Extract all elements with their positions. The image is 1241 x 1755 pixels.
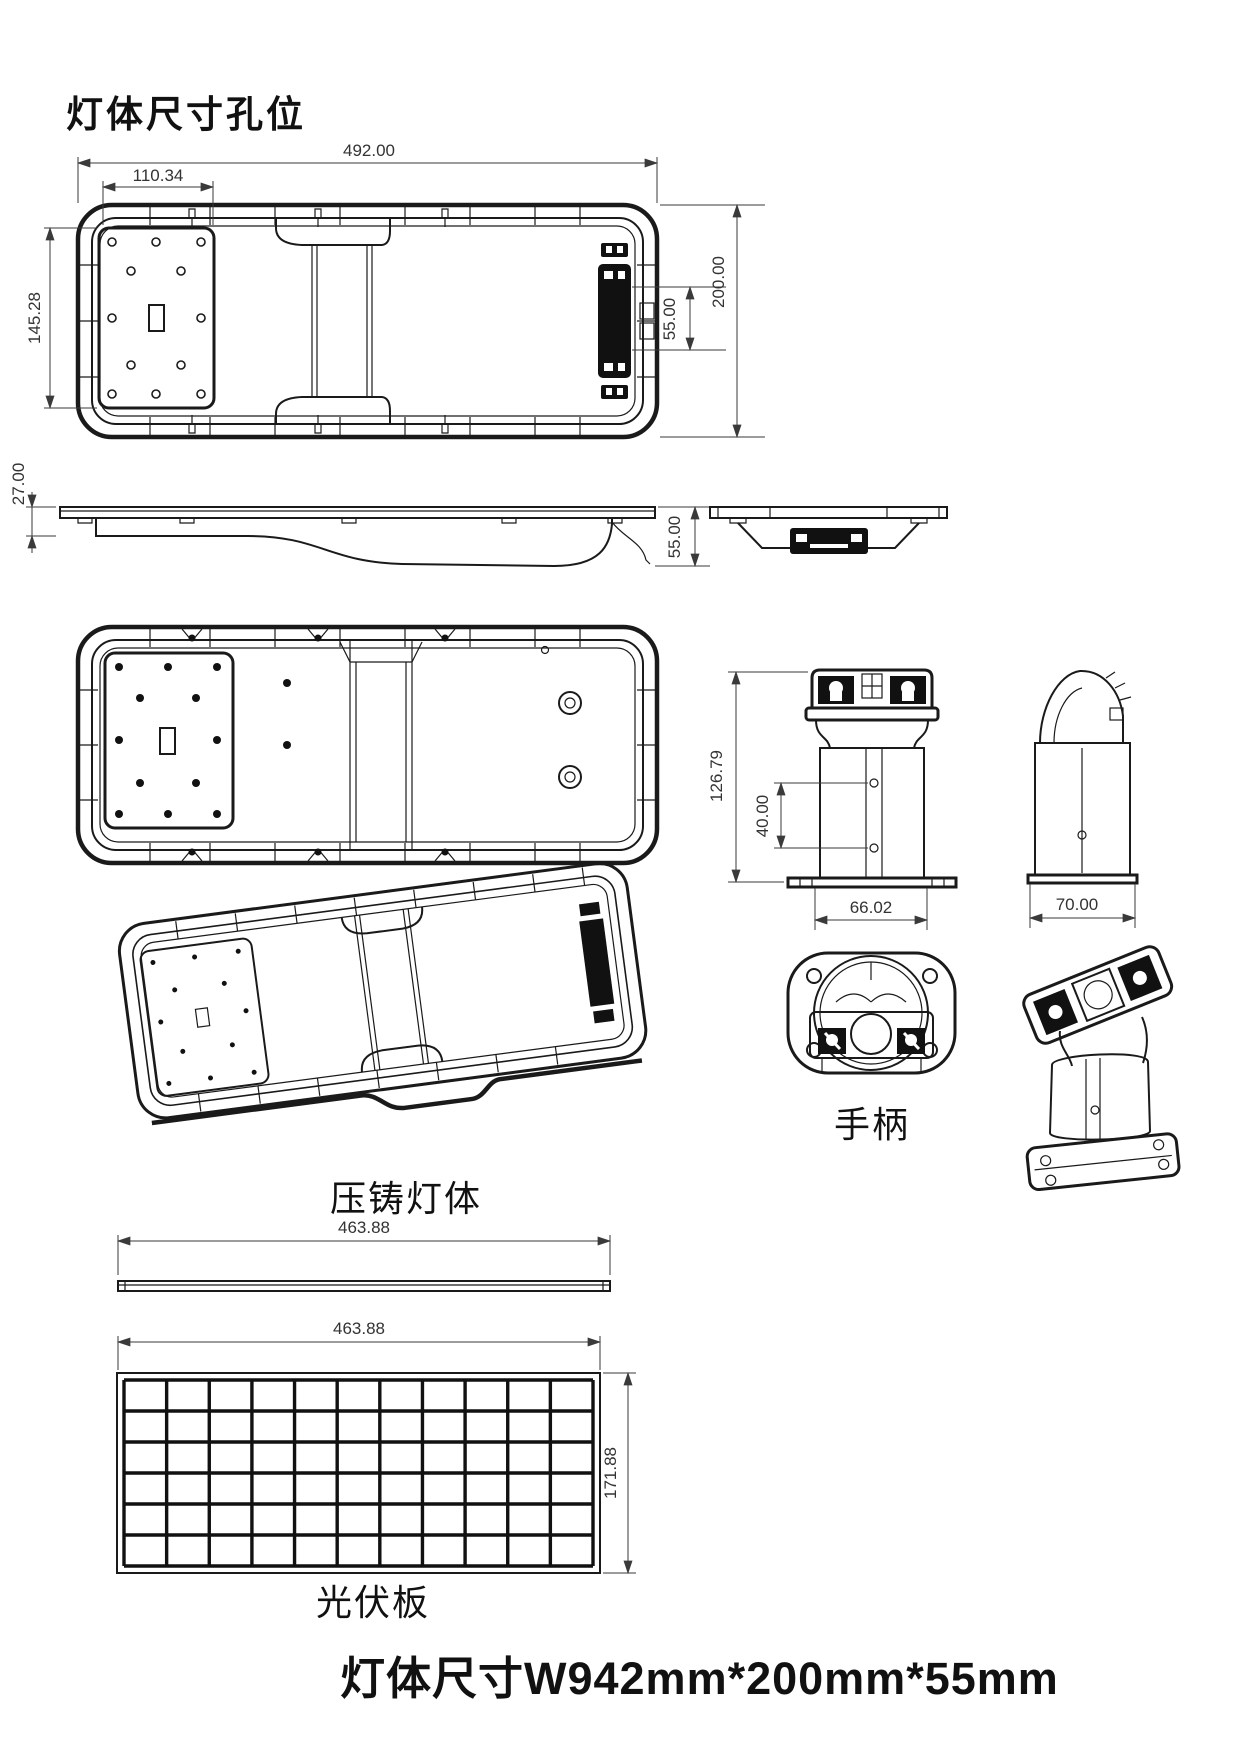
bracket-side-drawing: 70.00 [1010,630,1190,960]
handle-label: 手柄 [834,1096,910,1148]
solar-cell-grid [124,1380,593,1566]
mounting-holes [108,238,205,398]
dim-base-width: 66.02 [850,898,893,917]
dim-side-base-width: 70.00 [1056,895,1099,914]
dim-overall-height: 200.00 [709,256,728,308]
handle-iso-base [1026,1133,1180,1190]
solar-bar-drawing: 463.88 [80,1215,660,1305]
plate-screws [115,663,221,818]
bracket-horn [1040,671,1123,743]
overall-size-note: 灯体尺寸W942mm*200mm*55mm [340,1642,1059,1707]
solar-panel-drawing: 463.88 171.88 [80,1318,680,1598]
dim-panel-height: 171.88 [601,1447,620,1499]
dim-hole-spacing: 40.00 [753,795,772,838]
top-view-drawing: 492.00 110.34 145.28 55.00 200.00 [20,125,800,465]
dim-plate-height: 145.28 [25,292,44,344]
dim-rim-thickness: 27.00 [10,463,28,506]
panel-edge-profile [118,1281,610,1291]
dim-panel-width: 463.88 [333,1319,385,1338]
side-top-rim [60,507,655,518]
handle-iso-cap [1021,944,1175,1047]
solar-panel-label: 光伏板 [316,1574,430,1626]
iso-connector [579,918,614,1006]
cable-connector [598,243,631,399]
dim-connector-height: 55.00 [660,298,679,341]
handle-iso-drawing [1000,935,1200,1205]
dim-plate-width: 110.34 [133,166,184,185]
dim-bar-width: 463.88 [338,1218,390,1237]
drawing-sheet: 灯体尺寸孔位 [0,0,1241,1755]
cast-body-iso-drawing [80,805,660,1185]
dim-bracket-height: 126.79 [707,750,726,802]
bracket-body [820,748,924,878]
dim-overall-width: 492.00 [343,141,395,160]
bracket-front-drawing: 126.79 40.00 66.02 [680,630,1010,960]
handle-bottom-drawing [770,940,980,1100]
bracket-base [788,878,956,887]
end-view-drawing [700,440,970,580]
pole-channel [276,219,390,423]
cable-pass-slot [149,305,164,331]
end-connector [790,528,868,554]
